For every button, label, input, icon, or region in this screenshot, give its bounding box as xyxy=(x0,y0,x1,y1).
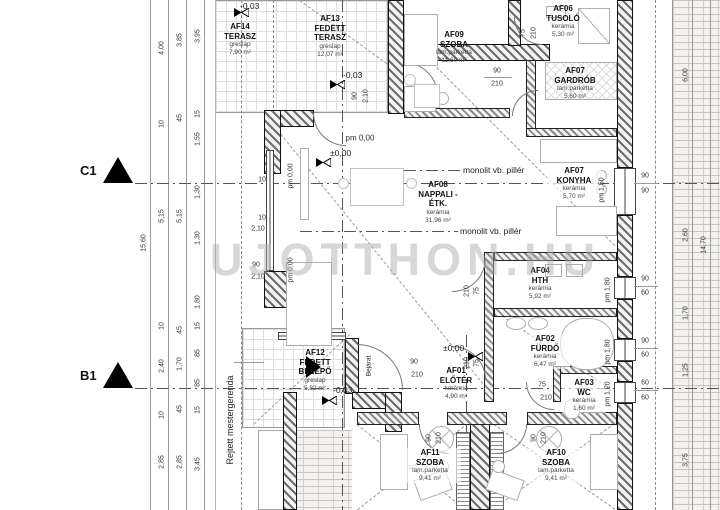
room-af08-nappali: AF08 NAPPALI - ÉTK. kerámia 31,96 m² xyxy=(416,180,460,224)
kitchen-counter-top xyxy=(540,139,617,163)
leader-hidden-beam xyxy=(234,362,264,363)
dim-left-b0: 3,85 xyxy=(177,33,184,47)
dim-left-b5: 45 xyxy=(177,405,184,413)
dim-left-a5: 10 xyxy=(159,411,166,419)
section-label-c1: C1 xyxy=(80,163,97,178)
chair-szoba10 xyxy=(492,460,505,473)
elevation-terrace-top: -0,03 xyxy=(240,1,259,11)
wall-east-3 xyxy=(617,299,633,339)
room-af07-gardrob: AF07 GARDRÓB lam.parketta 5,60 m² xyxy=(544,66,606,101)
dim-small-b: 10 xyxy=(258,215,266,222)
section-marker-c1-icon xyxy=(103,157,133,183)
leader-pillar-mid xyxy=(300,231,458,232)
entrance-arrow-icon xyxy=(306,356,321,378)
wall-east-1 xyxy=(617,0,633,168)
wall-terrace-east xyxy=(388,0,404,114)
partition-hth-furdo xyxy=(494,308,617,317)
dim-door-furdo-w: 75 xyxy=(474,359,481,367)
window-wc xyxy=(614,382,636,403)
dim-win-hth-a: 90 xyxy=(641,276,649,283)
elevation-flag-icon xyxy=(322,396,337,405)
dim-left-a3: 10 xyxy=(159,322,166,330)
watermark: UJOTTHON.HU xyxy=(210,234,601,286)
section-marker-b1-icon xyxy=(103,362,133,388)
wall-east-4 xyxy=(617,361,633,382)
partition-wc-west xyxy=(553,366,561,402)
dim-left-c3: 1,30 xyxy=(195,185,202,199)
sink-double-2 xyxy=(528,317,548,330)
dim-divider xyxy=(634,390,658,391)
elevation-zero-nappali: ±0,00 xyxy=(330,148,351,158)
dim-right-4: 3,75 xyxy=(683,453,690,467)
dim-win-furdo-a: 90 xyxy=(641,338,649,345)
dim-right-overall: 14,70 xyxy=(701,236,708,254)
dim-door-szoba11-w: 90 xyxy=(426,434,433,442)
window-hth xyxy=(614,277,636,299)
room-af07-konyha: AF07 KONYHA kerámia 5,70 m² xyxy=(547,166,601,201)
note-monolit-pillar-top: monolit vb. pillér xyxy=(463,165,524,175)
parapet-zero-a: pm 0,00 xyxy=(346,134,375,143)
bed-szoba10 xyxy=(590,434,618,490)
dim-door-hth-h: 210 xyxy=(464,285,471,297)
wall-east-5 xyxy=(617,403,633,510)
dim-line-left-c xyxy=(204,0,205,510)
room-af10-szoba: AF10 SZOBA lam.parketta 9,41 m² xyxy=(525,448,587,483)
dim-divider xyxy=(634,286,658,287)
dim-door-af13-w: 90 xyxy=(352,92,359,100)
dim-line-left-a xyxy=(168,0,169,510)
dim-win-kitchen-b: 90 xyxy=(641,188,649,195)
sink-double-1 xyxy=(506,317,526,330)
door-arc-terrace xyxy=(313,113,346,146)
kitchen-counter-bottom xyxy=(556,206,617,236)
dim-left-c6: 15 xyxy=(195,322,202,330)
dim-win-wc-b: 60 xyxy=(641,395,649,402)
dim-right-2: 1,70 xyxy=(683,306,690,320)
wall-sw-lower xyxy=(283,392,297,510)
dim-left-a1: 10 xyxy=(159,120,166,128)
floor-plan-canvas: C1 B1 xyxy=(0,0,720,510)
dim-door-corridor-h: 210 xyxy=(491,81,503,88)
dim-win-hth-b: 60 xyxy=(641,290,649,297)
dim-left-c10: 3,45 xyxy=(195,457,202,471)
dim-divider xyxy=(634,348,658,349)
dim-line-left-overall xyxy=(150,0,151,510)
elevation-terrace-mid: -0,03 xyxy=(343,70,362,80)
dim-door-szoba10-w: 90 xyxy=(531,434,538,442)
section-label-b1: B1 xyxy=(80,368,97,383)
dim-right-0: 6,00 xyxy=(683,68,690,82)
room-af01-eloter: AF01 ELŐTÉR kerámia 4,90 m² xyxy=(431,366,481,401)
elevation-zero-eloter: ±0,00 xyxy=(443,343,464,353)
window-kitchen xyxy=(614,168,636,215)
dim-left-c7: 85 xyxy=(195,349,202,357)
dim-door-tusolo-w: 75 xyxy=(520,29,527,37)
room-af02-furdo: AF02 FÜRDŐ kerámia 6,47 m² xyxy=(520,334,570,369)
dim-door-tusolo-h: 210 xyxy=(531,27,538,39)
neighbour-building-right xyxy=(672,0,720,510)
dim-line-left-b xyxy=(186,0,187,510)
parapet-wc: pm 1,20 xyxy=(605,381,612,406)
dim-line-right-a xyxy=(692,0,693,510)
dim-left-a0: 4,00 xyxy=(159,41,166,55)
window-furdo xyxy=(614,339,636,361)
room-af14-terasz: AF14 TERASZ greslap 7,90 m² xyxy=(215,22,265,57)
note-hidden-beam: Rejtett mestergerenda xyxy=(225,375,235,464)
room-af09-szoba: AF09 SZOBA lam.parketta 11,60 m² xyxy=(423,30,485,65)
property-line-right xyxy=(655,0,656,510)
dim-left-b6: 2,85 xyxy=(177,455,184,469)
elevation-flag-icon xyxy=(316,158,331,167)
dim-left-c1: 15 xyxy=(195,110,202,118)
room-af13-fedett-terasz: AF13 FEDETT TERASZ greslap 12,07 m² xyxy=(304,14,356,58)
dim-left-c5: 1,80 xyxy=(195,295,202,309)
terrace-chair xyxy=(404,74,416,86)
dim-left-c4: 1,30 xyxy=(195,231,202,245)
dim-door-wc-w: 75 xyxy=(538,382,546,389)
dim-door-wc-h: 210 xyxy=(540,395,552,402)
dim-left-a6: 2,85 xyxy=(159,455,166,469)
dim-door-entry-h: 210 xyxy=(411,372,423,379)
dim-door-af13-h: 2,10 xyxy=(363,89,370,103)
dim-left-b4: 1,70 xyxy=(177,357,184,371)
elevation-belepo: -0,03 xyxy=(333,385,352,395)
door-arc-entry xyxy=(357,344,403,390)
dim-left-b1: 45 xyxy=(177,114,184,122)
elevation-flag-icon xyxy=(330,80,345,89)
terrace-table xyxy=(414,84,440,108)
dim-left-b3: 45 xyxy=(177,326,184,334)
tv-cabinet xyxy=(300,148,309,220)
dim-right-1: 2,60 xyxy=(683,228,690,242)
dim-left-a2: 5,15 xyxy=(159,209,166,223)
parapet-hth: pm 1,80 xyxy=(605,277,612,302)
dim-door-furdo-h: 210 xyxy=(464,357,471,369)
dim-line-right-overall xyxy=(710,0,711,510)
dim-door-corridor-w: 90 xyxy=(493,68,501,75)
dim-left-c0: 3,95 xyxy=(195,29,202,43)
dim-win-wc-a: 60 xyxy=(641,380,649,387)
dining-chair-1 xyxy=(338,178,349,189)
room-af11-szoba: AF11 SZOBA lam.parketta 9,41 m² xyxy=(399,448,461,483)
dim-right-3: 1,25 xyxy=(683,363,690,377)
dim-door-szoba10-h: 210 xyxy=(541,432,548,444)
partition-konyha-north xyxy=(526,128,617,137)
room-af03-wc: AF03 WC kerámia 1,60 m² xyxy=(562,378,606,413)
parapet-furdo: pm 1,80 xyxy=(605,339,612,364)
note-entrance: Bejárat xyxy=(366,356,373,377)
dim-left-c9: 15 xyxy=(195,406,202,414)
dim-divider xyxy=(484,77,512,78)
dim-win-furdo-b: 60 xyxy=(641,352,649,359)
dim-left-a4: 2,40 xyxy=(159,359,166,373)
dim-west-glazing-a: 2,10 xyxy=(251,226,265,233)
dim-left-c2: 1,55 xyxy=(195,132,202,146)
dim-door-entry-w: 90 xyxy=(410,359,418,366)
dim-left-b2: 5,15 xyxy=(177,209,184,223)
leader-pillar-top xyxy=(404,170,460,171)
dim-door-szoba11-h: 210 xyxy=(436,432,443,444)
parapet-zero-b: pm 0,00 xyxy=(288,163,295,188)
door-arc-szoba10 xyxy=(497,424,527,454)
dim-small-a: 10 xyxy=(258,177,266,184)
dim-left-c8: 85 xyxy=(195,379,202,387)
dim-divider xyxy=(634,183,658,184)
terrace-split-dashed xyxy=(273,0,274,113)
room-af06-tusolo: AF06 TUSOLÓ kerámia 5,30 m² xyxy=(536,4,590,39)
dim-win-kitchen-a: 90 xyxy=(641,173,649,180)
door-arc-gardrob xyxy=(512,90,538,116)
parapet-kitchen: pm 1,50 xyxy=(599,177,606,202)
dim-door-hth-w: 75 xyxy=(474,287,481,295)
partition-bottom-1 xyxy=(357,412,419,425)
dim-left-overall: 15,60 xyxy=(141,234,148,252)
wall-party xyxy=(470,424,490,510)
dining-table xyxy=(350,168,404,206)
wall-east-2 xyxy=(617,215,633,277)
